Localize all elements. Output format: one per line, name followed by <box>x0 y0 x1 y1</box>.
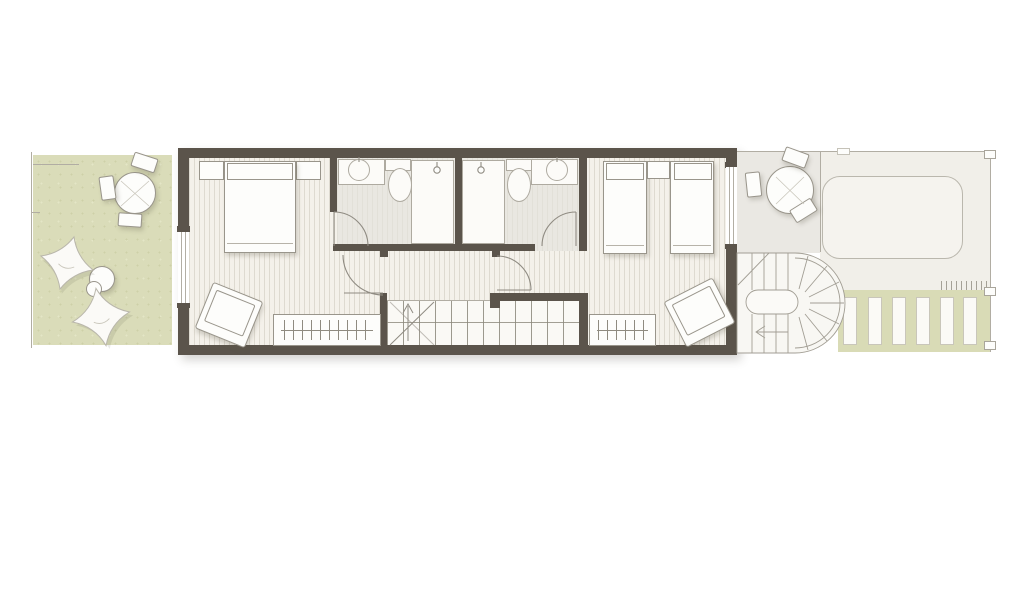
door-arc-bedroom1 <box>343 255 383 295</box>
shower-head-icon <box>434 167 440 173</box>
door-arc-bathroom1 <box>334 212 368 246</box>
table-detail-line <box>776 177 804 204</box>
plan-linework <box>0 0 1030 600</box>
floor-plan-canvas <box>0 0 1030 600</box>
bean-bag <box>67 283 138 355</box>
door-arc-bedroom2 <box>497 256 531 290</box>
shower-head-icon <box>478 167 484 173</box>
spiral-stair-core <box>746 290 798 314</box>
door-arc-bathroom2 <box>542 212 576 246</box>
table-detail-line <box>121 181 149 206</box>
spiral-staircase <box>737 253 845 353</box>
bean-bag <box>33 230 103 301</box>
